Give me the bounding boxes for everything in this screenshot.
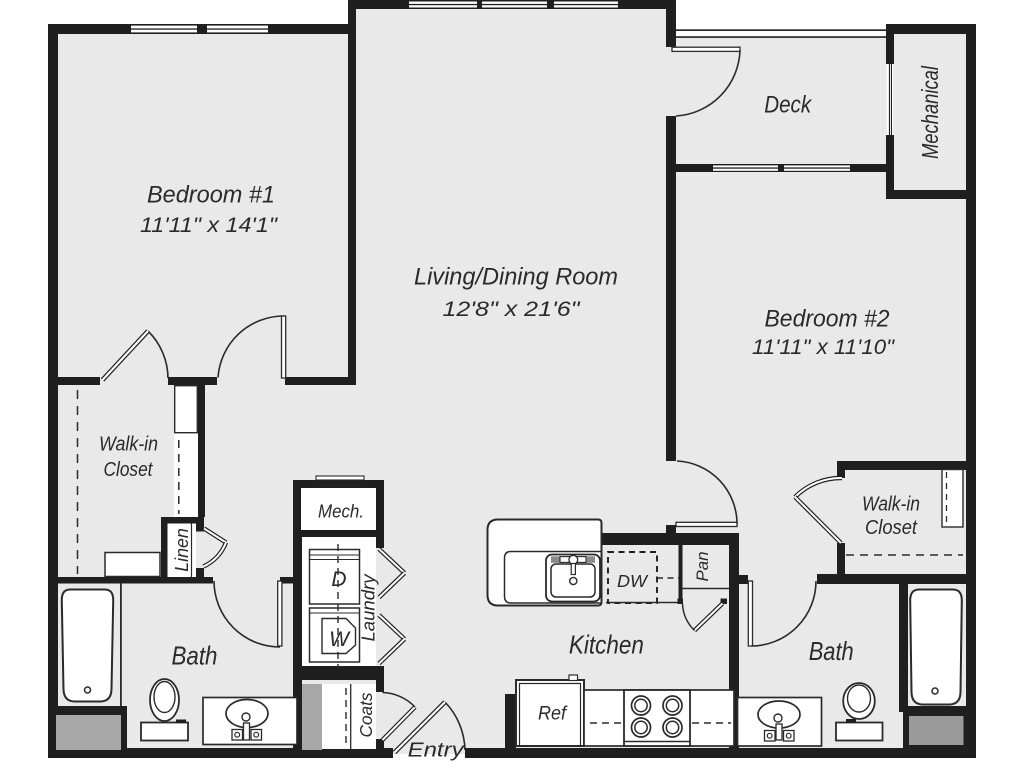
svg-text:Pan: Pan bbox=[694, 552, 712, 582]
svg-text:11'11" x 11'10": 11'11" x 11'10" bbox=[752, 336, 896, 359]
svg-text:Mechanical: Mechanical bbox=[917, 65, 943, 159]
svg-text:Kitchen: Kitchen bbox=[569, 630, 644, 660]
svg-text:Closet: Closet bbox=[865, 517, 918, 539]
svg-text:Linen: Linen bbox=[172, 528, 192, 572]
svg-text:Living/Dining Room: Living/Dining Room bbox=[414, 264, 618, 291]
svg-text:Closet: Closet bbox=[104, 459, 154, 481]
svg-text:Coats: Coats bbox=[356, 692, 376, 737]
svg-text:Mech.: Mech. bbox=[318, 502, 364, 522]
svg-text:Bedroom #1: Bedroom #1 bbox=[147, 182, 275, 209]
svg-text:Bedroom #2: Bedroom #2 bbox=[765, 306, 890, 333]
svg-text:Walk-in: Walk-in bbox=[862, 494, 920, 516]
svg-text:12'8" x 21'6": 12'8" x 21'6" bbox=[443, 298, 582, 321]
svg-text:Walk-in: Walk-in bbox=[99, 434, 158, 456]
svg-text:D: D bbox=[331, 568, 346, 591]
svg-text:DW: DW bbox=[617, 571, 649, 591]
svg-text:Bath: Bath bbox=[809, 636, 854, 666]
svg-text:Deck: Deck bbox=[764, 92, 813, 119]
svg-text:Ref: Ref bbox=[538, 704, 568, 725]
svg-text:Bath: Bath bbox=[172, 641, 218, 671]
svg-text:Laundry: Laundry bbox=[359, 573, 379, 641]
svg-text:Entry: Entry bbox=[408, 740, 465, 762]
svg-text:11'11" x 14'1": 11'11" x 14'1" bbox=[140, 214, 279, 237]
svg-text:W: W bbox=[329, 628, 351, 651]
